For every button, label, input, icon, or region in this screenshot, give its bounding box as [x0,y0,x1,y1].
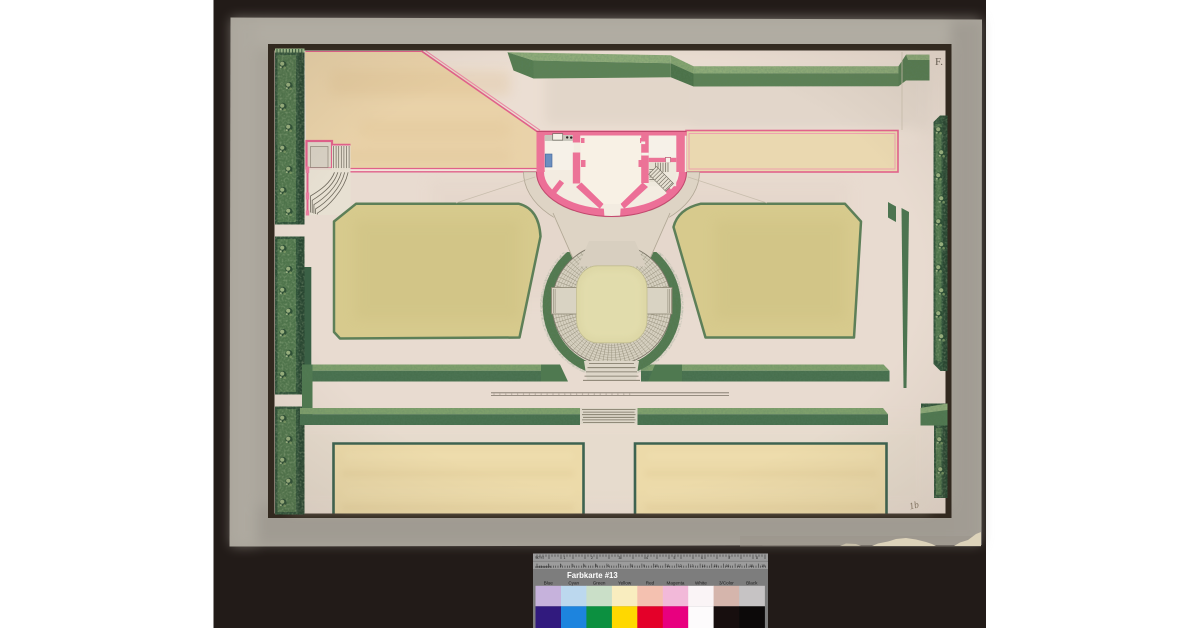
svg-text:16: 16 [726,564,730,568]
svg-text:14: 14 [702,564,706,568]
svg-text:6: 6 [607,564,609,568]
svg-text:18: 18 [749,564,753,568]
svg-text:8: 8 [631,564,633,568]
svg-text:10: 10 [654,564,658,568]
svg-text:15: 15 [714,564,718,568]
svg-text:4: 4 [584,564,586,568]
svg-text:5: 5 [674,556,676,560]
svg-text:White: White [695,581,707,586]
svg-text:11: 11 [666,564,670,568]
svg-text:7: 7 [729,556,731,560]
svg-text:Cyan: Cyan [568,581,579,586]
svg-text:12: 12 [678,564,682,568]
svg-text:7: 7 [619,564,621,568]
svg-text:3: 3 [572,564,574,568]
svg-text:Blue: Blue [544,581,554,586]
svg-text:3: 3 [619,556,621,560]
svg-text:1: 1 [564,556,566,560]
svg-text:Green: Green [593,581,606,586]
svg-text:9: 9 [643,564,645,568]
svg-text:centimetres: centimetres [535,565,552,569]
svg-text:6: 6 [701,556,703,560]
svg-text:8: 8 [756,556,758,560]
svg-text:13: 13 [690,564,694,568]
svg-text:5: 5 [596,564,598,568]
svg-text:inches: inches [535,556,545,560]
svg-text:Magenta: Magenta [667,581,685,586]
svg-text:Farbkarte #13: Farbkarte #13 [567,571,618,580]
svg-text:19: 19 [761,564,765,568]
svg-text:2: 2 [560,564,562,568]
svg-text:4: 4 [646,556,648,560]
svg-text:3/Color: 3/Color [719,581,734,586]
svg-text:Yellow: Yellow [618,581,632,586]
svg-text:Black: Black [746,581,758,586]
svg-text:2: 2 [591,556,593,560]
svg-text:17: 17 [737,564,741,568]
svg-text:Red: Red [646,581,655,586]
